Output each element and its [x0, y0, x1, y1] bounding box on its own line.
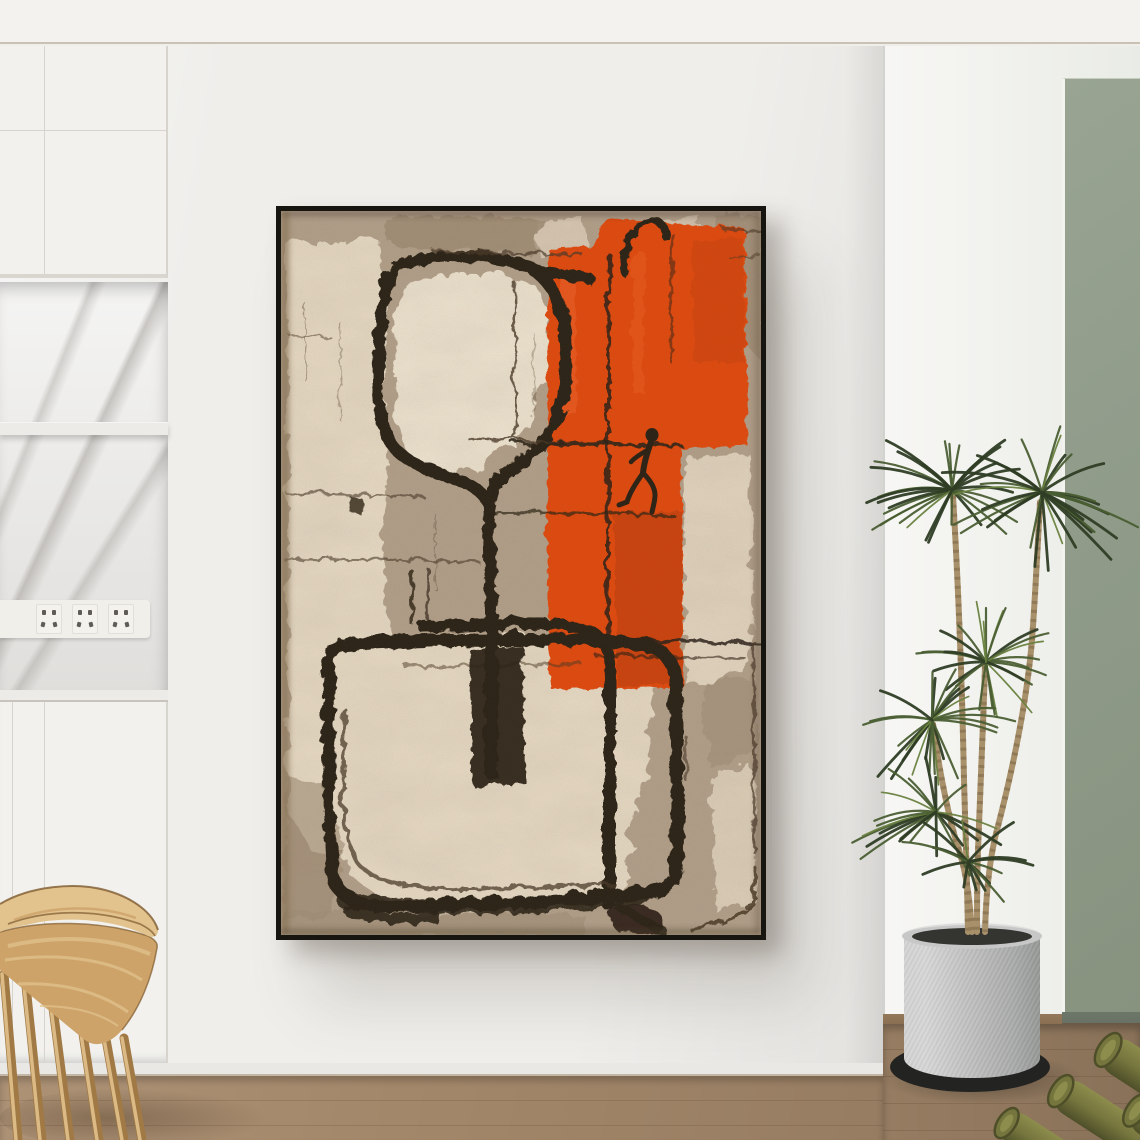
canvas-grain [281, 211, 761, 935]
dracaena-plant [840, 380, 1140, 960]
cabinet-door-seam [44, 46, 45, 274]
bolster-cushions [975, 1028, 1140, 1140]
power-outlet [72, 604, 98, 634]
power-outlet [108, 604, 134, 634]
upper-cabinet [0, 46, 168, 278]
power-outlet [36, 604, 62, 634]
outlet-strip [0, 600, 150, 638]
interior-photo [0, 0, 1140, 1140]
ceiling [0, 0, 1140, 44]
chair-backrest-band [0, 886, 158, 1044]
marble-shelf [0, 422, 168, 435]
abstract-painting [276, 206, 766, 940]
counter-lip [0, 690, 168, 702]
cabinet-door-seam [0, 130, 166, 131]
painting-canvas [281, 211, 761, 935]
wooden-chair [0, 878, 345, 1140]
